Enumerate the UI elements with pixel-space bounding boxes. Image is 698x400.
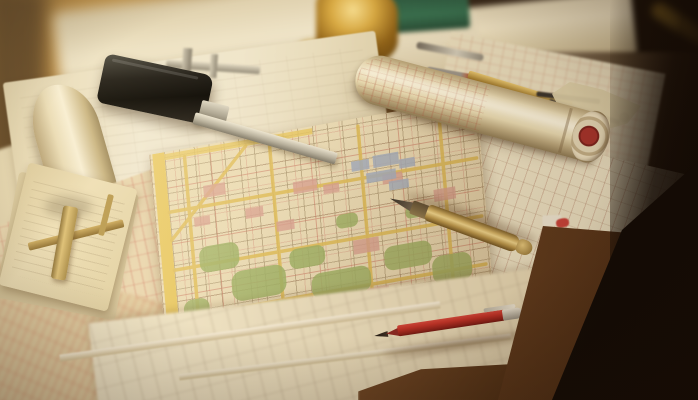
fountain-pen-cap-end bbox=[514, 238, 534, 258]
scrap-red-bit bbox=[555, 217, 569, 228]
photo-scene bbox=[0, 0, 698, 400]
caliper-jaw bbox=[209, 54, 218, 78]
red-pen-tip bbox=[374, 331, 389, 339]
